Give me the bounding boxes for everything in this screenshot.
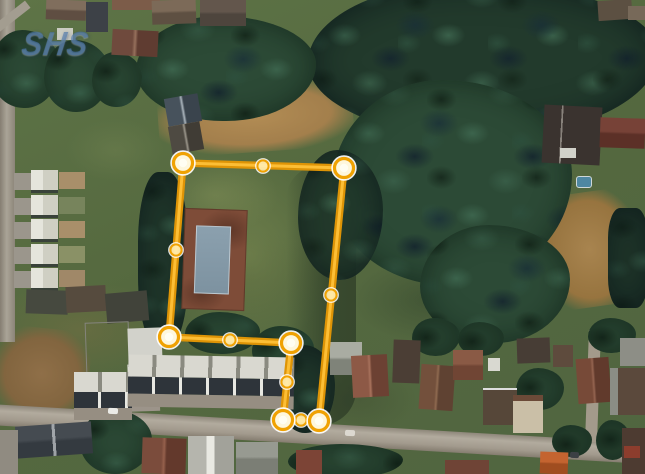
watermark-logo: SHS [19, 25, 91, 64]
vertex-handle-center [279, 416, 287, 424]
parcel-midpoint-handle[interactable] [325, 289, 336, 300]
parcel-boundary-overlay[interactable] [0, 0, 645, 474]
parcel-midpoint-handle[interactable] [224, 334, 235, 345]
vertex-handle-center [340, 164, 348, 172]
vertex-handle-center [179, 159, 187, 167]
parcel-edge[interactable] [169, 163, 344, 421]
parcel-midpoint-handle[interactable] [257, 160, 268, 171]
parcel-midpoint-handle[interactable] [295, 414, 306, 425]
vertex-handle-center [165, 333, 173, 341]
vertex-handle-center [287, 339, 295, 347]
parcel-midpoint-handle[interactable] [281, 376, 292, 387]
vertex-handle-center [315, 417, 323, 425]
parcel-midpoint-handle[interactable] [170, 244, 181, 255]
parcel-edge-highlight [169, 163, 344, 421]
satellite-map-canvas[interactable]: SHS [0, 0, 645, 474]
